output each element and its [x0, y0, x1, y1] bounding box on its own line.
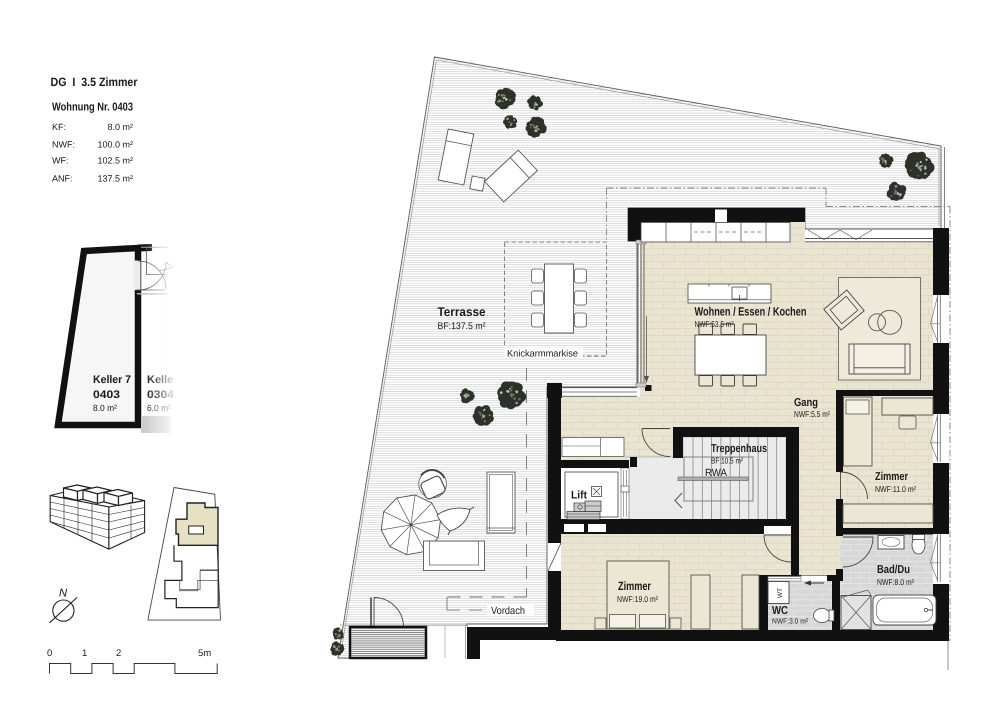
- svg-text:DG I 3.5 Zimmer: DG I 3.5 Zimmer: [51, 75, 138, 89]
- svg-text:Wohnen / Essen / Kochen: Wohnen / Essen / Kochen: [695, 305, 807, 319]
- svg-text:KF:: KF:: [52, 122, 66, 132]
- svg-text:BF:137.5 m²: BF:137.5 m²: [438, 321, 486, 332]
- svg-text:8.0 m²: 8.0 m²: [107, 122, 133, 132]
- svg-text:2: 2: [116, 648, 121, 659]
- svg-text:Wohnung Nr. 0403: Wohnung Nr. 0403: [52, 102, 133, 114]
- svg-text:RWA: RWA: [705, 467, 727, 479]
- svg-text:Zimmer: Zimmer: [618, 579, 651, 593]
- svg-text:Terrasse: Terrasse: [438, 305, 486, 319]
- svg-text:BF:10.5 m²: BF:10.5 m²: [711, 456, 743, 466]
- svg-text:8.0 m²: 8.0 m²: [93, 403, 117, 413]
- svg-text:NWF:8.0 m²: NWF:8.0 m²: [877, 577, 914, 587]
- svg-text:WC: WC: [772, 605, 788, 617]
- svg-text:NWF:3.0 m²: NWF:3.0 m²: [772, 617, 808, 626]
- svg-text:NWF:5.5 m²: NWF:5.5 m²: [794, 409, 830, 419]
- svg-text:Knickarmmarkise: Knickarmmarkise: [507, 349, 578, 360]
- svg-text:Vordach: Vordach: [491, 605, 525, 617]
- svg-text:NWF:11.0 m²: NWF:11.0 m²: [875, 484, 916, 494]
- svg-text:0403: 0403: [93, 389, 120, 401]
- svg-text:WF:: WF:: [52, 156, 69, 166]
- svg-text:N: N: [59, 588, 68, 600]
- svg-text:100.0 m²: 100.0 m²: [97, 139, 133, 149]
- svg-text:0: 0: [47, 648, 52, 659]
- svg-text:1: 1: [82, 648, 87, 659]
- svg-text:NWF:19.0 m²: NWF:19.0 m²: [617, 594, 658, 604]
- svg-text:137.5 m²: 137.5 m²: [97, 173, 133, 183]
- svg-text:WT: WT: [777, 588, 784, 598]
- svg-text:NWF:: NWF:: [52, 139, 75, 149]
- svg-text:Zimmer: Zimmer: [875, 471, 908, 483]
- svg-text:Bad/Du: Bad/Du: [877, 564, 910, 576]
- svg-text:NWF:53.5 m²: NWF:53.5 m²: [695, 319, 734, 329]
- svg-text:Treppenhaus: Treppenhaus: [711, 443, 767, 455]
- svg-text:Gang: Gang: [794, 397, 818, 409]
- svg-text:102.5 m²: 102.5 m²: [97, 156, 133, 166]
- svg-text:Lift: Lift: [571, 490, 587, 502]
- svg-text:ANF:: ANF:: [52, 173, 73, 183]
- svg-text:5m: 5m: [198, 648, 211, 659]
- svg-text:Keller 7: Keller 7: [93, 374, 131, 386]
